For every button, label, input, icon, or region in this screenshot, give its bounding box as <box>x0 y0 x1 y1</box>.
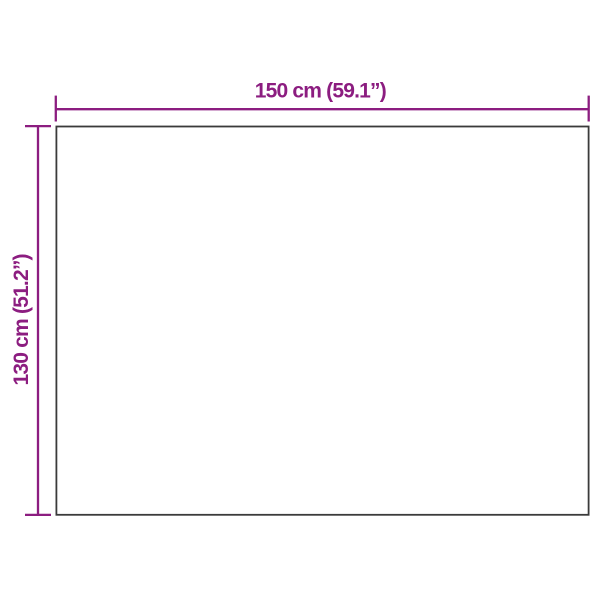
svg-text:150 cm (59.1”): 150 cm (59.1”) <box>255 79 386 102</box>
svg-text:130 cm (51.2”): 130 cm (51.2”) <box>10 254 33 385</box>
